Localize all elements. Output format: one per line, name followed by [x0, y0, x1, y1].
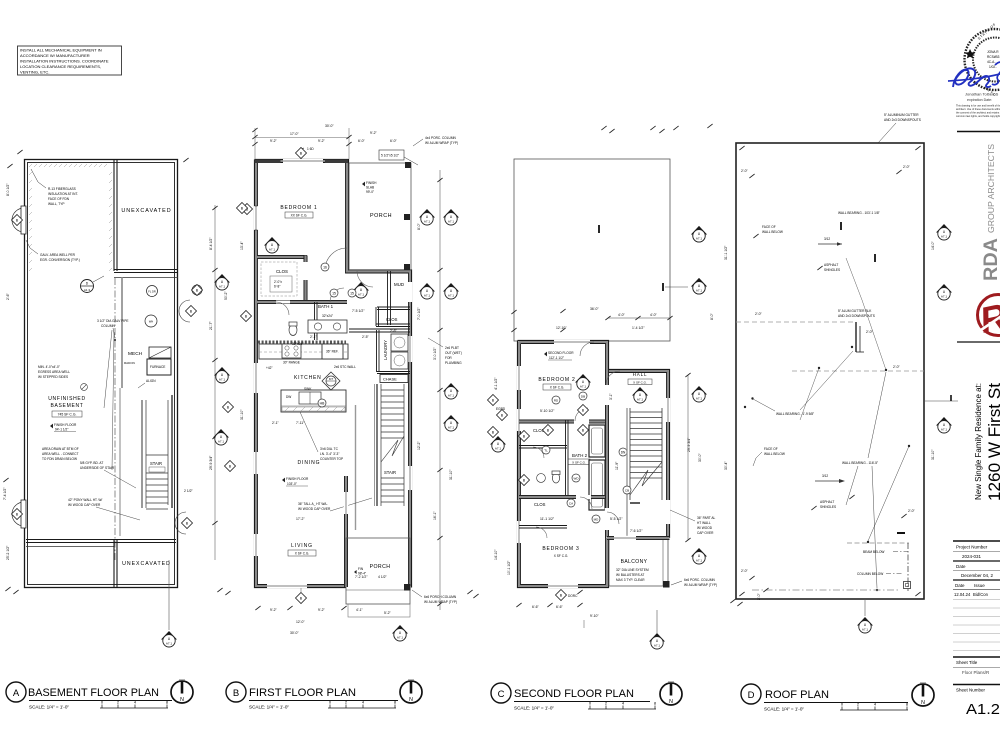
svg-text:ACCORDANCE W/ MANUFACTURER: ACCORDANCE W/ MANUFACTURER	[20, 53, 90, 58]
svg-text:WH: WH	[149, 320, 153, 324]
svg-text:UNFINISHED: UNFINISHED	[48, 396, 86, 402]
svg-text:9'-2": 9'-2"	[270, 139, 278, 143]
svg-text:FL DR: FL DR	[148, 290, 156, 294]
svg-text:3/12: 3/12	[824, 237, 830, 241]
svg-text:CA: CA	[569, 502, 573, 506]
svg-text:5'-10 1/2": 5'-10 1/2"	[540, 409, 555, 413]
svg-text:8'-0": 8'-0"	[710, 312, 714, 320]
svg-text:Date: Date	[956, 564, 966, 569]
svg-text:WALL, TYP: WALL, TYP	[48, 202, 64, 206]
svg-text:FINISH FLOOR: FINISH FLOOR	[286, 477, 309, 481]
svg-text:December 04, 2: December 04, 2	[961, 573, 994, 578]
svg-text:2'-6": 2'-6"	[390, 329, 398, 333]
svg-text:25'-2 1/2": 25'-2 1/2"	[6, 545, 10, 560]
svg-text:DW: DW	[286, 395, 291, 399]
svg-text:W/ STEPPED SIDES: W/ STEPPED SIDES	[38, 375, 68, 379]
svg-text:17'-0": 17'-0"	[290, 132, 299, 136]
svg-text:Bid/Con: Bid/Con	[973, 592, 989, 597]
svg-text:7'-4 1/2": 7'-4 1/2"	[3, 487, 7, 500]
svg-text:WALL BEARING - 116'-5": WALL BEARING - 116'-5"	[842, 461, 878, 465]
svg-text:9'-2": 9'-2"	[318, 139, 326, 143]
svg-text:2'-0": 2'-0"	[741, 569, 749, 573]
svg-text:29'-9 3/4": 29'-9 3/4"	[687, 437, 691, 452]
svg-text:2'-1": 2'-1"	[272, 421, 280, 425]
svg-text:6'-6": 6'-6"	[556, 605, 564, 609]
svg-text:GALV. AREA WELL PER: GALV. AREA WELL PER	[40, 253, 76, 257]
svg-text:14'-10": 14'-10"	[494, 549, 498, 560]
svg-text:31'-10": 31'-10"	[931, 449, 935, 460]
svg-text:X SF C.G.: X SF C.G.	[633, 381, 647, 385]
svg-text:30'-0": 30'-0"	[698, 453, 702, 462]
svg-text:BASEMENT FLOOR PLAN: BASEMENT FLOOR PLAN	[28, 687, 159, 699]
svg-text:OUT (WET): OUT (WET)	[445, 351, 462, 355]
svg-text:+42": +42"	[266, 366, 273, 370]
svg-text:50'-2": 50'-2"	[224, 291, 228, 300]
svg-text:W/ BALUSTERS AT: W/ BALUSTERS AT	[616, 573, 644, 577]
svg-text:6'-6": 6'-6"	[532, 605, 540, 609]
svg-text:BALCONY: BALCONY	[621, 559, 648, 565]
svg-text:HT WALL: HT WALL	[697, 521, 711, 525]
svg-text:7'-0 1/2": 7'-0 1/2"	[417, 307, 421, 320]
svg-text:New Single Family Residence at: New Single Family Residence at:	[974, 383, 983, 500]
svg-text:D: D	[748, 690, 755, 701]
svg-text:2'-0": 2'-0"	[893, 365, 901, 369]
svg-text:4 1/2": 4 1/2"	[378, 575, 388, 579]
svg-text:FINISH: FINISH	[366, 181, 377, 185]
svg-text:SLAB: SLAB	[366, 186, 374, 190]
svg-text:2 1/2": 2 1/2"	[184, 489, 194, 493]
svg-text:8'-0": 8'-0"	[417, 222, 421, 230]
svg-text:LAUNDRY: LAUNDRY	[383, 340, 388, 360]
svg-text:INSULATION AT INT.: INSULATION AT INT.	[48, 192, 78, 196]
svg-text:7'-2 1/2": 7'-2 1/2"	[355, 575, 368, 579]
svg-text:Sheet Title: Sheet Title	[956, 660, 978, 665]
svg-text:2'-0": 2'-0"	[757, 592, 761, 600]
svg-text:X SF C.G.: X SF C.G.	[572, 461, 586, 465]
svg-text:29'-9 3/4": 29'-9 3/4"	[209, 455, 213, 470]
svg-text:WD: WD	[574, 477, 580, 481]
svg-text:2'-0": 2'-0"	[741, 169, 749, 173]
svg-text:5'-2": 5'-2"	[384, 611, 392, 615]
svg-text:RADON: RADON	[124, 361, 135, 365]
svg-text:Jonathan Tolbert S: Jonathan Tolbert S	[965, 92, 999, 97]
svg-text:4C-A..: 4C-A..	[987, 60, 996, 64]
svg-text:31'-10": 31'-10"	[240, 409, 244, 420]
svg-text:PORCH: PORCH	[370, 564, 391, 570]
svg-text:X SF C.G.: X SF C.G.	[295, 552, 310, 556]
svg-text:SECOND FLOOR: SECOND FLOOR	[548, 351, 574, 355]
svg-text:2'-0": 2'-0"	[903, 165, 911, 169]
svg-text:SCALE: 1/4" = 1'-0": SCALE: 1/4" = 1'-0"	[764, 707, 804, 712]
svg-text:PLUMBING: PLUMBING	[445, 361, 462, 365]
svg-text:5" ALUMINUM GUTTER: 5" ALUMINUM GUTTER	[884, 113, 919, 117]
svg-text:6'-0": 6'-0"	[390, 139, 398, 143]
svg-text:7'-6 1/2": 7'-6 1/2"	[630, 529, 643, 533]
svg-text:LIVING: LIVING	[291, 543, 313, 549]
svg-text:1260 W First St: 1260 W First St	[986, 383, 1000, 501]
svg-text:INSTALL ALL MECHANICAL EQUIPME: INSTALL ALL MECHANICAL EQUIPMENT IN	[20, 48, 102, 53]
svg-text:10'-1 1/2": 10'-1 1/2"	[507, 560, 511, 575]
svg-text:W/ ALUM WRAP (TYP): W/ ALUM WRAP (TYP)	[684, 583, 717, 587]
svg-text:AND 2x3 DOWNSPOUTS: AND 2x3 DOWNSPOUTS	[838, 314, 875, 318]
svg-text:STAIR: STAIR	[384, 470, 396, 475]
svg-text:98'-4": 98'-4"	[358, 572, 366, 576]
svg-text:3/12: 3/12	[822, 474, 828, 478]
svg-text:30" RANGE: 30" RANGE	[283, 361, 300, 365]
svg-text:FIRST FLOOR PLAN: FIRST FLOOR PLAN	[249, 687, 356, 699]
svg-text:MAX 3 TYP. CLEAR: MAX 3 TYP. CLEAR	[616, 578, 645, 582]
svg-text:8'-4 1/2": 8'-4 1/2"	[209, 237, 213, 250]
svg-text:CLOS: CLOS	[276, 269, 288, 274]
svg-text:CHASE: CHASE	[383, 377, 397, 382]
svg-text:9'-2": 9'-2"	[318, 608, 326, 612]
svg-text:1/02..: 1/02..	[989, 65, 997, 69]
svg-text:Sheet Number: Sheet Number	[956, 688, 986, 693]
svg-text:103'-0": 103'-0"	[287, 482, 297, 486]
svg-text:11'-1 1/2": 11'-1 1/2"	[540, 517, 555, 521]
svg-text:2'-0": 2'-0"	[755, 312, 763, 316]
svg-text:2x6 PLBT: 2x6 PLBT	[445, 346, 459, 350]
svg-text:SCALE: 1/4" = 1'-0": SCALE: 1/4" = 1'-0"	[29, 705, 69, 710]
svg-text:EGRESS AREA WELL: EGRESS AREA WELL	[38, 370, 70, 374]
svg-text:36'-0": 36'-0"	[590, 307, 599, 311]
svg-text:2'-0": 2'-0"	[908, 509, 916, 513]
svg-text:GROUP ARCHITECTS: GROUP ARCHITECTS	[986, 144, 996, 233]
svg-text:5" ALUM GUTTER BLK: 5" ALUM GUTTER BLK	[838, 309, 872, 313]
svg-text:745 SF C.G.: 745 SF C.G.	[58, 413, 77, 417]
svg-text:LN. 3'-4" 3'-3": LN. 3'-4" 3'-3"	[320, 452, 339, 456]
svg-text:LOCATION CLEARANCE REQUIREMENT: LOCATION CLEARANCE REQUIREMENTS,	[20, 64, 101, 69]
svg-text:COLUMN BELOW: COLUMN BELOW	[857, 572, 883, 576]
svg-text:common law rights, and holds c: common law rights, and holds copyright.	[956, 115, 1000, 118]
svg-text:BEDROOM 2: BEDROOM 2	[538, 377, 575, 383]
svg-text:A1.3: A1.3	[84, 288, 91, 292]
svg-text:RDA: RDA	[981, 238, 1000, 281]
svg-text:12'-2": 12'-2"	[417, 441, 421, 450]
svg-text:99'-0": 99'-0"	[366, 190, 374, 194]
svg-text:KITCHEN: KITCHEN	[294, 375, 322, 381]
svg-text:Issue: Issue	[974, 583, 985, 588]
svg-text:2'-0"x: 2'-0"x	[274, 280, 282, 284]
svg-text:CAP OVER: CAP OVER	[697, 531, 714, 535]
svg-text:AREA DRAIN AT BTM OF: AREA DRAIN AT BTM OF	[42, 447, 79, 451]
svg-text:2'-1": 2'-1"	[310, 335, 318, 339]
svg-text:32"x24": 32"x24"	[292, 342, 304, 346]
svg-text:FACE OF FDN: FACE OF FDN	[48, 197, 70, 201]
svg-text:SHINGLES: SHINGLES	[824, 268, 840, 272]
svg-text:C: C	[498, 689, 505, 700]
svg-text:DORC: DORC	[568, 594, 578, 598]
svg-text:4'-0": 4'-0"	[650, 313, 658, 317]
svg-text:ASPHALT: ASPHALT	[824, 263, 838, 267]
svg-text:3'-0 1/2": 3'-0 1/2"	[433, 347, 437, 360]
svg-text:PORCH: PORCH	[370, 213, 392, 219]
svg-text:16'-1": 16'-1"	[433, 511, 437, 520]
svg-text:B: B	[233, 688, 239, 699]
svg-text:7'-11": 7'-11"	[296, 421, 305, 425]
svg-text:X SF C.G.: X SF C.G.	[554, 554, 569, 558]
svg-text:4x4 PORC. COLUMN: 4x4 PORC. COLUMN	[425, 136, 457, 140]
svg-text:STAIR: STAIR	[150, 461, 162, 466]
svg-text:FIN: FIN	[358, 567, 364, 571]
svg-text:R-13 FIBERGLASS: R-13 FIBERGLASS	[48, 187, 76, 191]
svg-text:W/ WOOD CAP OVER: W/ WOOD CAP OVER	[68, 503, 101, 507]
svg-text:WALL BELOW: WALL BELOW	[764, 452, 785, 456]
svg-text:21'-7": 21'-7"	[209, 321, 213, 330]
svg-text:DINING: DINING	[298, 460, 321, 466]
svg-text:FACE OF: FACE OF	[764, 447, 778, 451]
svg-text:TL: TL	[544, 449, 548, 453]
svg-text:A: A	[13, 688, 20, 699]
svg-text:BEAM BELOW: BEAM BELOW	[863, 550, 884, 554]
svg-text:SCALE: 1/4" = 1'-0": SCALE: 1/4" = 1'-0"	[514, 706, 554, 711]
svg-text:3'x6 DIA. TC: 3'x6 DIA. TC	[320, 447, 339, 451]
svg-text:CLOS: CLOS	[386, 317, 398, 322]
svg-text:BEDROOM 1: BEDROOM 1	[280, 205, 317, 211]
svg-text:AREA WELL - CONNECT: AREA WELL - CONNECT	[42, 452, 79, 456]
svg-text:DB: DB	[581, 395, 585, 399]
svg-text:4'-0": 4'-0"	[618, 313, 626, 317]
svg-text:17'-2": 17'-2"	[296, 517, 305, 521]
svg-text:FURNACE: FURNACE	[150, 365, 165, 369]
svg-text:CB: CB	[625, 489, 629, 493]
svg-text:W/ WOOD CAP OVER: W/ WOOD CAP OVER	[298, 507, 331, 511]
svg-text:12'-10": 12'-10"	[556, 326, 567, 330]
svg-text:HB: HB	[320, 402, 325, 406]
svg-text:COLUMN: COLUMN	[101, 324, 116, 328]
svg-text:WALL BEARING - 1'-9 5/8": WALL BEARING - 1'-9 5/8"	[776, 412, 814, 416]
svg-text:WALL BEARING - 103'-1 1/8": WALL BEARING - 103'-1 1/8"	[838, 211, 880, 215]
svg-text:CLOS: CLOS	[534, 502, 546, 507]
svg-text:RCS#B3: RCS#B3	[987, 55, 1000, 59]
svg-text:UNDERSIDE OF STAIR: UNDERSIDE OF STAIR	[80, 466, 115, 470]
svg-text:13'-4": 13'-4"	[240, 241, 244, 250]
svg-text:SECOND FLOOR PLAN: SECOND FLOOR PLAN	[514, 688, 634, 700]
svg-text:EGRD: EGRD	[496, 407, 506, 411]
svg-text:SCALE: 1/4" = 1'-0": SCALE: 1/4" = 1'-0"	[249, 705, 289, 710]
svg-text:TO FDN DRAIN BELOW: TO FDN DRAIN BELOW	[42, 457, 77, 461]
svg-text:W/ WOOD: W/ WOOD	[697, 526, 713, 530]
svg-text:2024-031: 2024-031	[962, 554, 982, 559]
svg-text:FOR: FOR	[445, 356, 452, 360]
svg-text:Floor Plans/R: Floor Plans/R	[962, 670, 990, 675]
svg-text:MUD: MUD	[394, 282, 404, 287]
svg-text:6x6 PORC. COLUMN: 6x6 PORC. COLUMN	[684, 578, 716, 582]
svg-text:VENTING, ETC.: VENTING, ETC.	[20, 70, 49, 75]
svg-text:X SF C.G.: X SF C.G.	[550, 386, 565, 390]
svg-text:MD: MD	[594, 518, 599, 522]
svg-text:3'-1": 3'-1"	[609, 392, 613, 400]
svg-text:XX SF C.G.: XX SF C.G.	[291, 214, 308, 218]
svg-text:15: 15	[350, 292, 354, 296]
svg-text:5'-5 1/2": 5'-5 1/2"	[610, 517, 623, 521]
svg-text:36" TALL A_ HT WA..: 36" TALL A_ HT WA..	[298, 502, 328, 506]
svg-text:SHINGLES: SHINGLES	[820, 505, 836, 509]
svg-text:12.04.24: 12.04.24	[954, 592, 971, 597]
svg-text:112'-1 1/2": 112'-1 1/2"	[549, 356, 564, 360]
svg-text:31'-10": 31'-10"	[449, 469, 453, 480]
svg-text:A1.2: A1.2	[966, 701, 1000, 718]
svg-text:2x6 STC WALL: 2x6 STC WALL	[334, 365, 356, 369]
svg-text:Project Number: Project Number	[956, 545, 988, 550]
svg-text:HALL: HALL	[633, 372, 648, 377]
svg-text:94'-1 1/2": 94'-1 1/2"	[55, 428, 68, 432]
svg-text:6'-8": 6'-8"	[274, 285, 280, 289]
svg-text:BATH 2: BATH 2	[572, 453, 588, 458]
svg-text:ROOF PLAN: ROOF PLAN	[765, 689, 829, 701]
svg-text:2'-5": 2'-5"	[362, 335, 370, 339]
svg-text:KIT: KIT	[329, 377, 334, 381]
svg-text:36" REF.: 36" REF.	[326, 350, 339, 354]
svg-text:UNEXCAVATED: UNEXCAVATED	[122, 561, 171, 567]
svg-text:6'-0": 6'-0"	[358, 139, 366, 143]
svg-text:FINISH FLOOR: FINISH FLOOR	[54, 423, 77, 427]
svg-text:31'-1 1/2": 31'-1 1/2"	[724, 245, 728, 260]
svg-text:1 6D: 1 6D	[307, 147, 314, 151]
svg-text:42" PONY WALL HT. W/: 42" PONY WALL HT. W/	[68, 498, 102, 502]
svg-text:36" PART AL: 36" PART AL	[697, 516, 716, 520]
svg-text:30'-0": 30'-0"	[325, 124, 334, 128]
svg-text:WALL BELOW: WALL BELOW	[762, 230, 783, 234]
svg-text:1'-4 1/2": 1'-4 1/2"	[632, 326, 645, 330]
svg-text:12'-0": 12'-0"	[296, 620, 305, 624]
svg-text:INSTALLATION INSTRUCTIONS. CO: INSTALLATION INSTRUCTIONS. COORDINATE	[20, 59, 109, 64]
svg-text:32" DIA LINE SYSTEM: 32" DIA LINE SYSTEM	[616, 568, 649, 572]
svg-text:MECH: MECH	[128, 351, 143, 357]
svg-text:expiration Date:: expiration Date:	[967, 98, 992, 102]
svg-text:6x6 PORCH COLUMN: 6x6 PORCH COLUMN	[424, 595, 457, 599]
svg-text:30'-4": 30'-4"	[724, 461, 728, 470]
svg-text:30'-0": 30'-0"	[290, 631, 299, 635]
svg-text:W/ ALUM WRAP (TYP): W/ ALUM WRAP (TYP)	[425, 141, 458, 145]
svg-text:16: 16	[323, 266, 327, 270]
svg-text:4'-1 1/2": 4'-1 1/2"	[494, 377, 498, 390]
svg-text:UNEXCAVATED: UNEXCAVATED	[121, 208, 171, 214]
svg-text:9'-2": 9'-2"	[270, 608, 278, 612]
svg-text:4'-1": 4'-1"	[356, 608, 364, 612]
svg-text:32"x24": 32"x24"	[322, 314, 333, 318]
svg-text:7'-5 1/2": 7'-5 1/2"	[352, 309, 365, 313]
svg-text:BEDROOM 3: BEDROOM 3	[542, 546, 579, 552]
svg-text:2'-6": 2'-6"	[6, 292, 10, 300]
svg-text:9'-10": 9'-10"	[590, 614, 599, 618]
svg-text:8'-0 1/2": 8'-0 1/2"	[6, 183, 10, 196]
svg-text:JONA R: JONA R	[987, 50, 999, 54]
svg-text:9'-2": 9'-2"	[370, 131, 378, 135]
svg-text:Date: Date	[955, 583, 965, 588]
svg-text:COUNTER TOP: COUNTER TOP	[320, 457, 343, 461]
svg-text:MIN. 4'-0"x4'-0": MIN. 4'-0"x4'-0"	[38, 365, 60, 369]
svg-text:FACE OF: FACE OF	[762, 225, 776, 229]
svg-text:5/8 GYP. BD. AT: 5/8 GYP. BD. AT	[80, 461, 103, 465]
svg-text:ASPHALT: ASPHALT	[820, 500, 834, 504]
svg-text:5 1/2"x5 1/2": 5 1/2"x5 1/2"	[381, 154, 399, 158]
svg-text:SINK: SINK	[304, 387, 312, 391]
svg-text:15: 15	[332, 292, 336, 296]
svg-text:AND 2x3 DOWNSPOUTS: AND 2x3 DOWNSPOUTS	[884, 118, 921, 122]
svg-text:EGR. CONVERSION (TYP.): EGR. CONVERSION (TYP.)	[40, 258, 80, 262]
svg-text:11'-9": 11'-9"	[615, 461, 619, 470]
svg-text:BATH 1: BATH 1	[318, 304, 334, 309]
svg-text:3 1/2" DIA GALV PIPE: 3 1/2" DIA GALV PIPE	[97, 319, 129, 323]
svg-text:14'-0": 14'-0"	[931, 241, 935, 250]
svg-text:DN: DN	[621, 451, 626, 455]
svg-text:ALIGN: ALIGN	[146, 379, 156, 383]
svg-text:BASEMENT: BASEMENT	[50, 403, 83, 409]
